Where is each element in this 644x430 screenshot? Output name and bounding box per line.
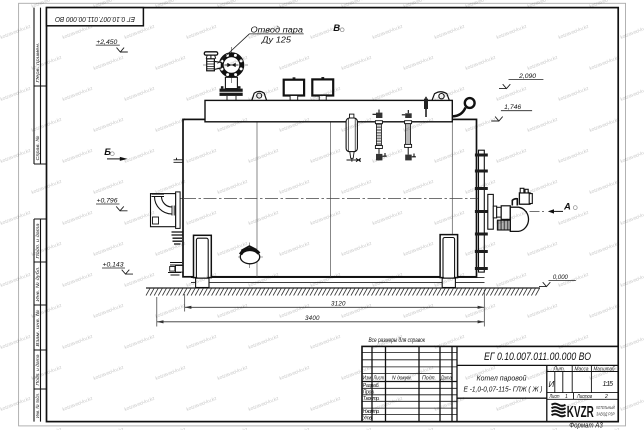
- svg-text:+0,143: +0,143: [103, 262, 124, 269]
- svg-text:Справ. №: Справ. №: [35, 136, 41, 161]
- svg-text:Изм: Изм: [363, 376, 372, 382]
- svg-text:Подп.: Подп.: [422, 376, 436, 382]
- svg-text:Формат А3: Формат А3: [569, 423, 603, 430]
- svg-text:3120: 3120: [331, 301, 346, 308]
- svg-text:1: 1: [565, 394, 568, 400]
- svg-text:Подп. и дата: Подп. и дата: [35, 354, 41, 385]
- svg-text:Пров.: Пров.: [363, 389, 375, 395]
- svg-text:Ду 125: Ду 125: [261, 35, 291, 45]
- svg-text:Инв. № дубл.: Инв. № дубл.: [35, 267, 41, 302]
- svg-text:ЕГ 0.10.007.011.00.000 ВО: ЕГ 0.10.007.011.00.000 ВО: [55, 15, 135, 24]
- svg-text:Е -1,0-0,07-115- ГЛЖ ( Ж ): Е -1,0-0,07-115- ГЛЖ ( Ж ): [464, 385, 543, 394]
- svg-text:+0,796: +0,796: [97, 198, 118, 205]
- svg-text:2: 2: [604, 394, 608, 400]
- svg-text:3400: 3400: [305, 315, 320, 322]
- svg-text:Перв. примен.: Перв. примен.: [35, 43, 41, 83]
- svg-text:Лист: Лист: [373, 376, 384, 382]
- svg-text:И: И: [549, 380, 555, 389]
- svg-text:ЕГ 0.10.007.011.00.000 ВО: ЕГ 0.10.007.011.00.000 ВО: [484, 351, 591, 363]
- svg-text:+2,450: +2,450: [96, 39, 117, 46]
- svg-text:Масса: Масса: [575, 366, 589, 372]
- svg-text:Инв. № подл.: Инв. № подл.: [35, 393, 41, 418]
- svg-text:Лист: Лист: [549, 394, 560, 400]
- svg-text:ЗАВОД РЗР: ЗАВОД РЗР: [596, 412, 615, 417]
- svg-text:1,746: 1,746: [504, 104, 521, 111]
- svg-text:2,090: 2,090: [518, 73, 536, 80]
- svg-text:1:15: 1:15: [603, 381, 614, 388]
- svg-text:Т.контр.: Т.контр.: [363, 396, 380, 402]
- svg-text:Утв.: Утв.: [363, 416, 373, 422]
- svg-text:Дата: Дата: [440, 376, 452, 382]
- svg-text:КОТЕЛЬНЫЙ: КОТЕЛЬНЫЙ: [596, 405, 615, 410]
- svg-text:Б: Б: [104, 147, 111, 158]
- svg-text:А: А: [563, 201, 571, 212]
- svg-text:Разраб.: Разраб.: [363, 383, 380, 389]
